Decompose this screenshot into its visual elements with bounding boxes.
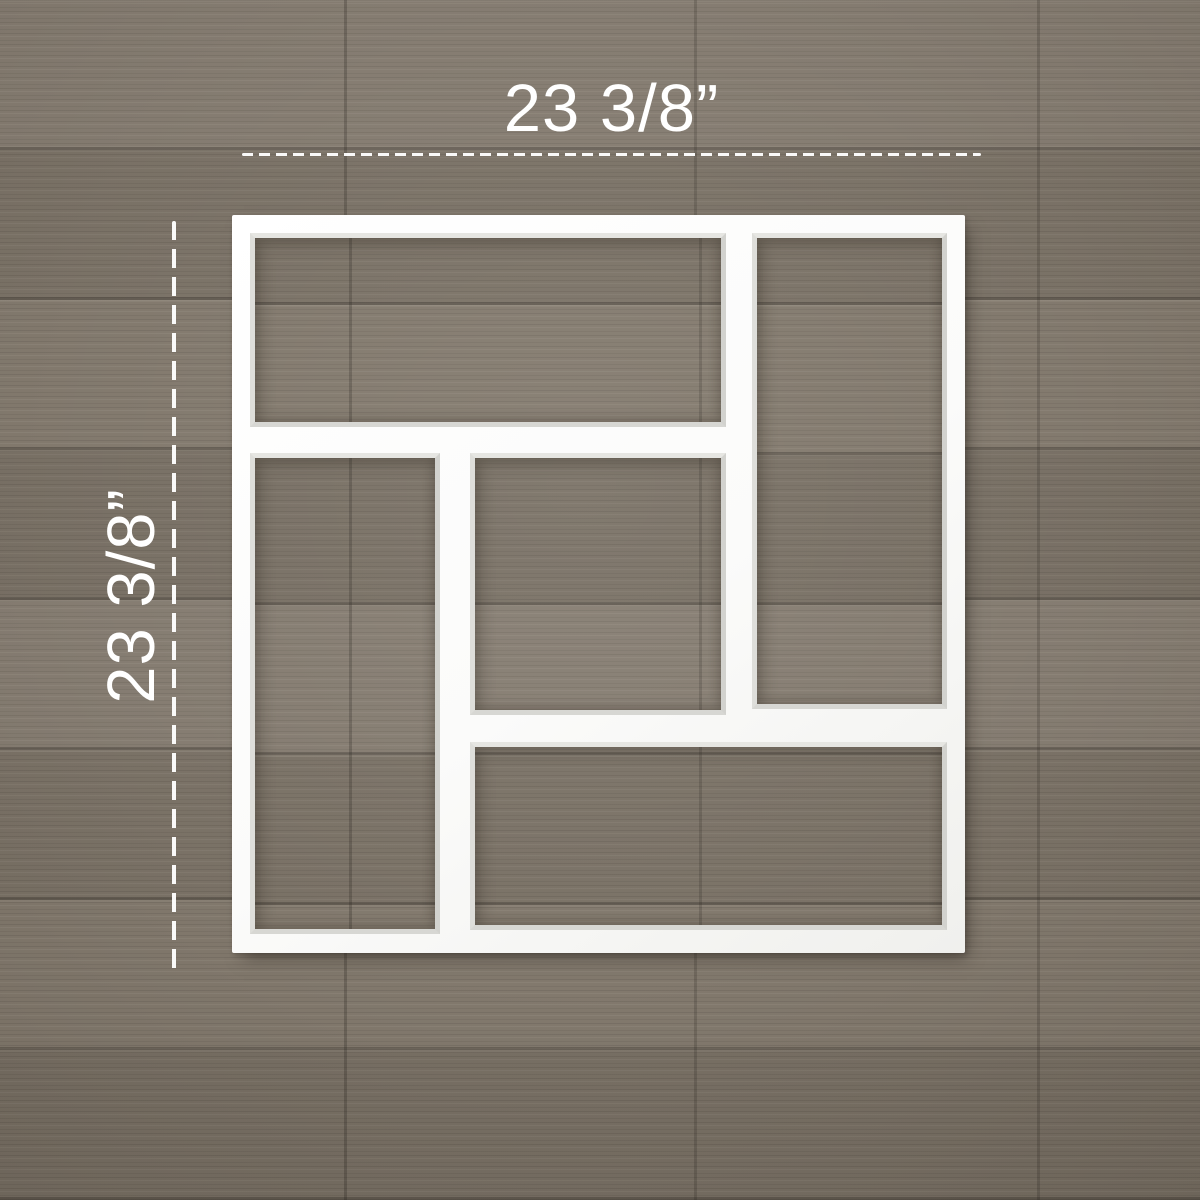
frame-opening-top-right <box>752 233 947 709</box>
width-dimension-label: 23 3/8” <box>242 76 981 142</box>
product-dimension-image: 23 3/8” 23 3/8” <box>0 0 1200 1200</box>
height-dimension-line <box>172 221 176 972</box>
width-dimension-line <box>242 153 981 156</box>
frame-opening-center <box>470 453 726 715</box>
frame-opening-middle-left <box>250 453 440 934</box>
frame-opening-bottom <box>470 742 947 930</box>
frame-opening-top-left <box>250 233 726 427</box>
height-dimension-label: 23 3/8” <box>99 226 165 966</box>
